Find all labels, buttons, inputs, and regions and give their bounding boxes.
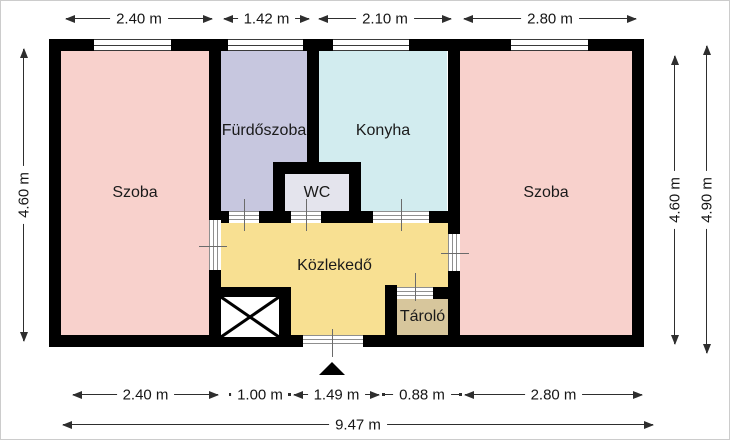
entrance-marker-icon — [319, 362, 345, 375]
shaft-box — [209, 287, 291, 347]
window-furdoszoba — [228, 39, 303, 51]
door-entrance — [303, 335, 363, 347]
room-label-szoba-right: Szoba — [523, 184, 568, 202]
room-szoba-right: Szoba — [460, 51, 632, 335]
door-leaf-konyha — [401, 199, 402, 231]
room-wc: WC — [285, 174, 349, 211]
dim-label: 1.42 m — [238, 10, 296, 27]
dim-label: 4.90 m — [698, 171, 715, 229]
room-label-kozlekedo: Közlekedő — [297, 257, 372, 275]
room-label-furdoszoba: Fürdőszoba — [222, 122, 307, 140]
dim-bottom-entrance: 1.49 m — [294, 394, 379, 395]
room-label-konyha: Konyha — [356, 122, 410, 140]
dim-label: 1.00 m — [231, 386, 289, 403]
window-konyha — [333, 39, 409, 51]
dim-total-width: 9.47 m — [63, 424, 653, 425]
window-szoba-right — [511, 39, 588, 51]
dim-bottom-szoba-left: 2.40 m — [73, 394, 218, 395]
dim-bottom-szoba-right: 2.80 m — [465, 394, 642, 395]
wall-furdoszoba-konyha — [307, 39, 319, 162]
door-leaf-furdoszoba — [244, 199, 245, 231]
room-label-tarolo: Tároló — [400, 308, 445, 326]
dim-label: 2.40 m — [110, 10, 168, 27]
room-szoba-left: Szoba — [61, 51, 209, 335]
wall-tarolo-left — [385, 285, 397, 335]
dim-label: 4.60 m — [15, 166, 32, 224]
dim-left-height: 4.60 m — [23, 49, 24, 341]
wall-wc-left — [273, 162, 285, 223]
dim-label: 2.80 m — [521, 10, 579, 27]
door-leaf-szoba-right — [441, 253, 469, 254]
wall-tarolo-top — [433, 287, 448, 299]
dim-top-furdoszoba: 1.42 m — [224, 18, 309, 19]
wall-wc-top — [273, 162, 361, 174]
door-szoba-left — [209, 220, 221, 270]
door-leaf-szoba-left — [199, 246, 227, 247]
dim-right-inner-height: 4.60 m — [674, 56, 675, 344]
wall-left — [49, 39, 61, 347]
room-label-szoba-left: Szoba — [112, 184, 157, 202]
door-leaf-entrance — [332, 329, 333, 357]
dim-label: 2.80 m — [525, 386, 583, 403]
door-leaf-tarolo — [415, 273, 416, 301]
room-tarolo: Tároló — [397, 299, 448, 335]
dim-label: 2.40 m — [117, 386, 175, 403]
dim-bottom-shaft: 1.00 m — [229, 394, 291, 395]
shaft-cross-icon — [221, 297, 279, 337]
dim-label: 4.60 m — [666, 171, 683, 229]
dim-top-szoba-right: 2.80 m — [464, 18, 636, 19]
dim-right-outer-height: 4.90 m — [706, 46, 707, 353]
window-szoba-left — [94, 39, 171, 51]
room-label-wc: WC — [304, 184, 331, 202]
dim-label: 2.10 m — [356, 10, 414, 27]
dim-top-konyha: 2.10 m — [319, 18, 451, 19]
door-leaf-wc — [306, 199, 307, 231]
dim-label: 0.88 m — [393, 386, 451, 403]
floor-plan-canvas: Szoba Fürdőszoba Konyha Közlekedő Szoba … — [0, 0, 730, 440]
wall-konyha-szoba-right — [448, 39, 460, 347]
wall-wc-right — [349, 162, 361, 223]
dim-top-szoba-left: 2.40 m — [66, 18, 212, 19]
dim-bottom-tarolo: 0.88 m — [382, 394, 462, 395]
dim-label: 9.47 m — [329, 416, 387, 433]
dim-label: 1.49 m — [308, 386, 366, 403]
wall-right — [632, 39, 644, 347]
